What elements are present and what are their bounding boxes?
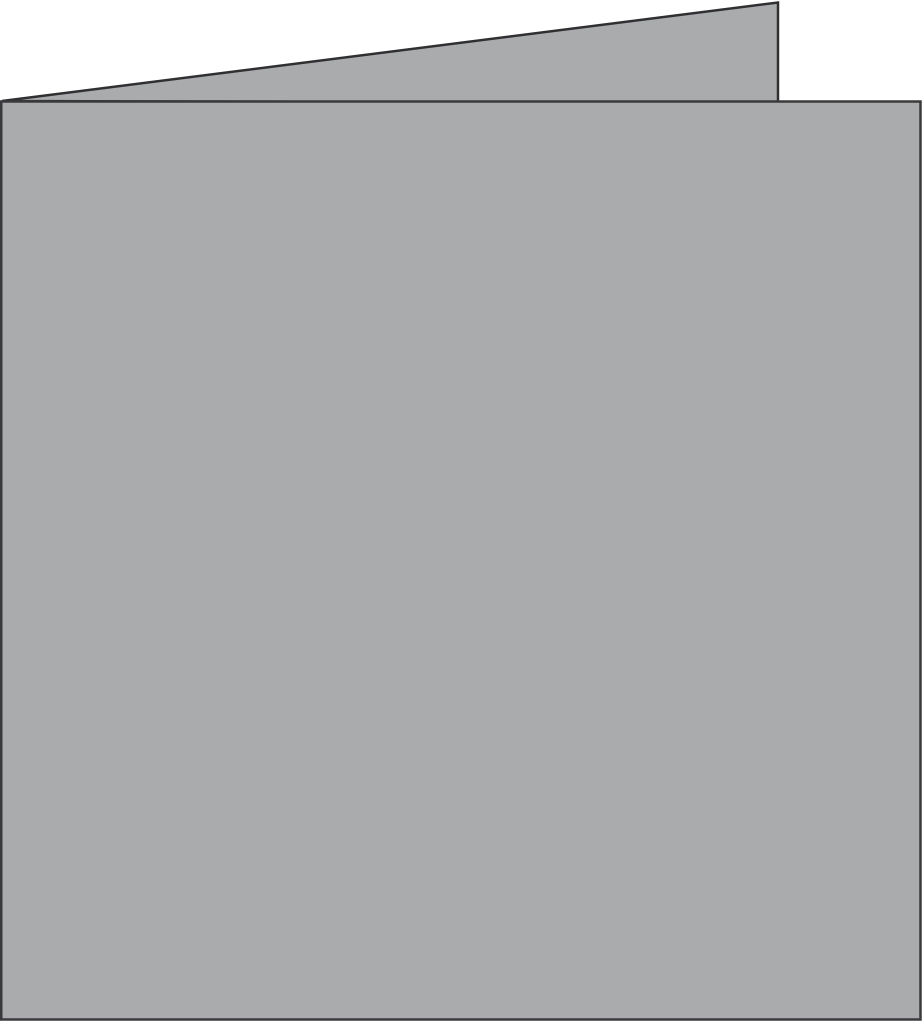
folded-card-image [0,0,922,1024]
card-front-panel [1,102,920,1020]
card-back-panel [2,3,778,104]
image-canvas [0,0,922,1024]
